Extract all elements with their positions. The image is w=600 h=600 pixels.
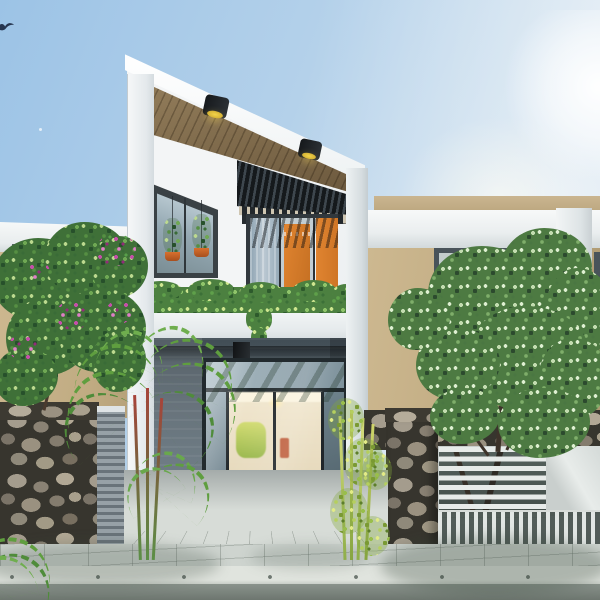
flower-cluster bbox=[96, 234, 136, 266]
plant-pot-1 bbox=[165, 252, 180, 261]
sky-speck bbox=[39, 128, 42, 131]
flower-cluster bbox=[106, 300, 132, 324]
upper-window-mullion bbox=[184, 198, 186, 273]
balcony-shade-stripes bbox=[250, 218, 338, 248]
fence-right-stone-pillar bbox=[386, 414, 438, 556]
hanging-plant-foliage-1 bbox=[163, 218, 182, 254]
flower-cluster bbox=[8, 334, 38, 360]
hanging-plant-foliage-2 bbox=[192, 214, 211, 250]
gate-side-panel bbox=[546, 446, 600, 516]
tree-shadow-right bbox=[380, 536, 600, 594]
plant-pot-2 bbox=[194, 248, 209, 257]
architectural-render-scene bbox=[0, 0, 600, 600]
flower-cluster bbox=[28, 262, 50, 282]
flower-cluster bbox=[56, 300, 90, 330]
bird-icon bbox=[0, 19, 15, 34]
